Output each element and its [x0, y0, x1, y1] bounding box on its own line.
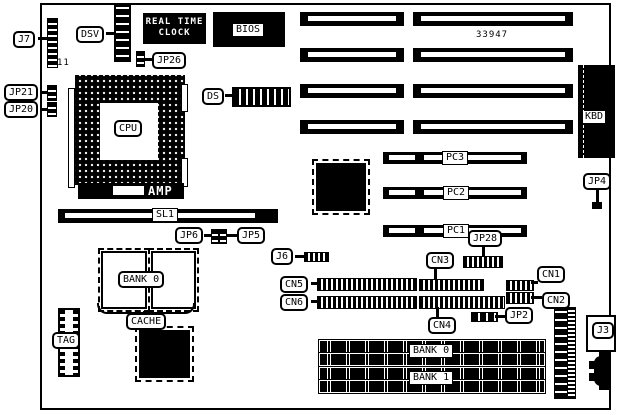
- jp21-pointer: [40, 91, 47, 94]
- cn2-connector: [506, 292, 534, 304]
- isa-slot: [413, 120, 573, 134]
- cpu-socket-left-bar: [68, 88, 75, 188]
- dsv-header: [114, 5, 131, 62]
- kbd-label: KBD: [583, 111, 605, 123]
- cn6-connector: [317, 296, 417, 309]
- power-connector: [554, 307, 576, 399]
- ds-connector: [232, 87, 291, 107]
- jp20-jumper: [47, 102, 57, 117]
- cache-bank0-label: BANK 0: [118, 271, 164, 288]
- chipset-chip: [316, 163, 366, 211]
- jp6-label: JP6: [175, 227, 203, 244]
- cpu-label: CPU: [114, 120, 142, 137]
- rtc-label-line1: REAL TIME: [146, 17, 204, 27]
- pc2-label: PC2: [443, 186, 469, 200]
- jp4-jumper: [592, 202, 602, 209]
- motherboard-diagram: J7 11 DSV REAL TIME CLOCK BIOS JP26 JP21…: [0, 0, 622, 415]
- jp4-pointer: [596, 189, 599, 202]
- pc3-label: PC3: [442, 151, 468, 165]
- din-keyboard-connector-body: [594, 356, 604, 386]
- cn3-connector: [419, 279, 484, 291]
- amp-label: AMP: [148, 184, 173, 198]
- cn5-label: CN5: [280, 276, 308, 293]
- jp28-label: JP28: [468, 230, 502, 247]
- bios-label: BIOS: [232, 23, 264, 37]
- amp-bar-window: [113, 186, 144, 195]
- din-keyboard-tab: [589, 373, 595, 381]
- cn5-pointer: [311, 282, 317, 285]
- jp4-label: JP4: [583, 173, 611, 190]
- jp20-pointer: [40, 108, 47, 111]
- isa-slot: [413, 48, 573, 62]
- cn2-pointer: [531, 296, 542, 299]
- cache-label: CACHE: [126, 313, 166, 330]
- din-keyboard-tab: [589, 361, 595, 369]
- cn4-pointer: [436, 307, 439, 317]
- power-connector-pins: [555, 308, 568, 398]
- jp26-label: JP26: [152, 52, 186, 69]
- jp2-connector: [471, 312, 498, 322]
- jp28-connector: [463, 256, 503, 268]
- tag-label: TAG: [52, 332, 80, 349]
- simm-bank0-label: BANK 0: [409, 344, 453, 358]
- sl1-label: SL1: [152, 208, 178, 222]
- jp21-label: JP21: [4, 84, 38, 101]
- j3-label: J3: [592, 322, 614, 339]
- j7-label: J7: [13, 31, 35, 48]
- jp6-jumper: [211, 229, 219, 244]
- j6-connector: [304, 252, 329, 262]
- cn5-connector: [317, 278, 417, 291]
- cn1-connector: [506, 280, 534, 291]
- dsv-pointer: [106, 32, 114, 35]
- rtc-label-line2: CLOCK: [158, 28, 190, 38]
- simm-bank1-label: BANK 1: [409, 371, 453, 385]
- pc1-label: PC1: [443, 224, 469, 238]
- isa-slot: [300, 12, 404, 26]
- jp6-pointer: [204, 234, 211, 237]
- cn6-label: CN6: [280, 294, 308, 311]
- cn4-connector: [419, 296, 505, 309]
- isa-slot: [300, 84, 404, 98]
- isa-slot: [300, 120, 404, 134]
- isa-slot: [300, 48, 404, 62]
- cn6-pointer: [311, 300, 317, 303]
- isa-slot: [413, 84, 573, 98]
- jp28-pointer: [482, 246, 485, 256]
- cn1-label: CN1: [537, 266, 565, 283]
- cn4-label: CN4: [428, 317, 456, 334]
- ds-label: DS: [202, 88, 224, 105]
- power-connector-edge: [568, 308, 575, 398]
- j7-pointer: [38, 37, 47, 40]
- jp5-pointer: [226, 234, 237, 237]
- j7-pin11-label: 11: [57, 58, 70, 68]
- jp5-label: JP5: [237, 227, 265, 244]
- jp2-pointer: [495, 315, 505, 318]
- jp20-label: JP20: [4, 101, 38, 118]
- jp21-jumper: [47, 85, 57, 101]
- ds-pointer: [225, 94, 232, 97]
- jp2-label: JP2: [505, 307, 533, 324]
- jp26-pointer: [144, 58, 152, 61]
- cn2-label: CN2: [542, 292, 570, 309]
- dsv-label: DSV: [76, 26, 104, 43]
- j6-label: J6: [271, 248, 293, 265]
- cn1-pointer: [531, 281, 538, 284]
- cpu-socket-tab-top: [181, 84, 188, 112]
- rtc-chip: REAL TIME CLOCK: [143, 13, 206, 44]
- cache-controller-chip: [139, 330, 190, 378]
- board-part-number: 33947: [476, 30, 508, 40]
- j6-pointer: [295, 255, 304, 258]
- isa-slot: [413, 12, 573, 26]
- cn3-label: CN3: [426, 252, 454, 269]
